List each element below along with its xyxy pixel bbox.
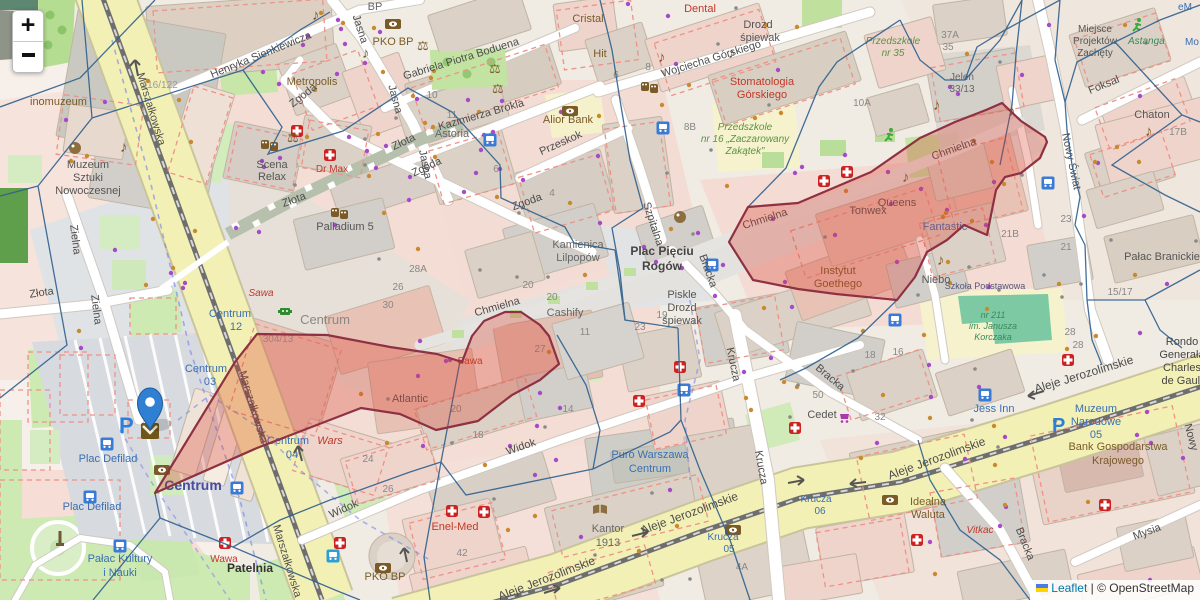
svg-text:30: 30	[382, 300, 394, 311]
svg-text:⚖: ⚖	[489, 61, 501, 76]
svg-text:20: 20	[522, 280, 534, 291]
svg-text:Rondo: Rondo	[1166, 336, 1198, 348]
svg-text:Krucza: Krucza	[707, 532, 739, 543]
svg-text:18: 18	[472, 430, 484, 441]
svg-text:12: 12	[230, 321, 242, 333]
svg-text:37A: 37A	[941, 30, 959, 41]
svg-text:03: 03	[204, 376, 216, 388]
svg-text:nr 35: nr 35	[882, 48, 905, 59]
svg-text:Krajowego: Krajowego	[1092, 455, 1144, 467]
svg-text:śpiewak: śpiewak	[662, 315, 702, 327]
svg-text:Górskiego: Górskiego	[737, 89, 787, 101]
svg-text:Krucza: Krucza	[800, 494, 832, 505]
svg-text:♪: ♪	[362, 45, 370, 62]
svg-text:Plac Defilad: Plac Defilad	[63, 501, 122, 513]
svg-text:1913: 1913	[596, 537, 620, 549]
svg-text:Pałac Kultury: Pałac Kultury	[88, 553, 153, 565]
svg-text:Sawa: Sawa	[248, 288, 273, 299]
svg-text:nr 211: nr 211	[981, 310, 1006, 320]
svg-text:21: 21	[1060, 242, 1072, 253]
svg-text:32: 32	[874, 412, 886, 423]
svg-text:śpiewak: śpiewak	[740, 32, 780, 44]
svg-text:42: 42	[456, 548, 468, 559]
svg-text:15/17: 15/17	[1107, 287, 1132, 298]
svg-text:P: P	[119, 413, 134, 438]
svg-text:Jess Inn: Jess Inn	[974, 403, 1015, 415]
svg-text:im. Janusza: im. Janusza	[969, 321, 1017, 331]
svg-text:06: 06	[814, 506, 826, 517]
svg-text:17B: 17B	[1169, 127, 1187, 138]
svg-text:Plac Defilad: Plac Defilad	[79, 453, 138, 465]
svg-text:18: 18	[864, 350, 876, 361]
svg-text:nr 16 „Zaczarowany: nr 16 „Zaczarowany	[701, 134, 790, 145]
svg-text:Przedszkole: Przedszkole	[718, 122, 773, 133]
svg-text:116/122: 116/122	[142, 80, 178, 91]
svg-text:Chaton: Chaton	[1134, 109, 1169, 121]
svg-text:28A: 28A	[409, 264, 427, 275]
svg-text:Stomatologia: Stomatologia	[730, 76, 795, 88]
svg-text:Plac Pięciu: Plac Pięciu	[630, 244, 693, 258]
svg-text:20: 20	[546, 292, 558, 303]
svg-text:♪: ♪	[937, 252, 945, 269]
svg-text:Charles: Charles	[1163, 362, 1200, 374]
svg-text:Lilpopów: Lilpopów	[556, 252, 599, 264]
svg-text:Drozd: Drozd	[667, 302, 696, 314]
svg-text:Piskle: Piskle	[667, 289, 696, 301]
svg-text:Metropolis: Metropolis	[287, 76, 338, 88]
svg-text:Generała: Generała	[1159, 349, 1200, 361]
svg-text:Zakątek”: Zakątek”	[725, 146, 766, 157]
svg-text:Sztuki: Sztuki	[73, 172, 103, 184]
svg-text:Cristal: Cristal	[572, 13, 603, 25]
svg-text:PKO BP: PKO BP	[373, 36, 414, 48]
svg-text:Dr Max: Dr Max	[316, 164, 348, 175]
svg-text:Centrum: Centrum	[185, 363, 227, 375]
svg-text:⚖: ⚖	[287, 130, 299, 145]
svg-text:16: 16	[892, 347, 904, 358]
svg-text:i Nauki: i Nauki	[103, 567, 137, 579]
svg-text:Astoria: Astoria	[435, 128, 470, 140]
svg-text:Waluta: Waluta	[911, 509, 946, 521]
svg-text:8: 8	[645, 62, 651, 73]
svg-text:6: 6	[493, 164, 499, 175]
svg-text:8B: 8B	[684, 122, 697, 133]
svg-text:28: 28	[1064, 327, 1076, 338]
svg-text:Relax: Relax	[258, 171, 287, 183]
svg-text:24: 24	[362, 454, 374, 465]
svg-text:PKO BP: PKO BP	[365, 571, 406, 583]
svg-text:Kantor: Kantor	[592, 523, 625, 535]
svg-text:Alior Bank: Alior Bank	[543, 114, 594, 126]
svg-text:♪: ♪	[933, 97, 941, 114]
svg-text:Palladium 5: Palladium 5	[316, 221, 373, 233]
svg-text:28: 28	[1072, 340, 1084, 351]
svg-text:Korczaka: Korczaka	[974, 332, 1012, 342]
svg-text:Hit: Hit	[593, 48, 606, 60]
svg-text:Vitkac: Vitkac	[966, 525, 993, 536]
svg-text:19: 19	[656, 310, 668, 321]
svg-text:33/13: 33/13	[949, 84, 974, 95]
svg-text:Miejsce: Miejsce	[1078, 24, 1112, 35]
svg-text:Cashify: Cashify	[547, 307, 584, 319]
svg-text:Szkoła Podstawowa: Szkoła Podstawowa	[945, 281, 1026, 291]
svg-text:Zachęty: Zachęty	[1077, 48, 1113, 59]
svg-text:26: 26	[392, 282, 404, 293]
svg-text:Kamienica: Kamienica	[552, 239, 604, 251]
svg-text:Wawa: Wawa	[210, 554, 238, 565]
svg-text:35: 35	[942, 42, 954, 53]
svg-text:Mo: Mo	[1185, 37, 1199, 48]
svg-text:Muzeum: Muzeum	[1075, 403, 1117, 415]
svg-text:10A: 10A	[853, 98, 871, 109]
svg-text:Muzeum: Muzeum	[67, 159, 109, 171]
svg-text:Cedet: Cedet	[807, 409, 836, 421]
svg-text:50: 50	[812, 390, 824, 401]
svg-text:11: 11	[580, 327, 591, 338]
svg-text:P: P	[1052, 415, 1065, 437]
svg-text:23: 23	[634, 322, 646, 333]
svg-text:Enel-Med: Enel-Med	[431, 521, 478, 533]
svg-text:♪: ♪	[120, 139, 128, 156]
svg-text:⚖: ⚖	[492, 81, 504, 96]
svg-text:de Gaull: de Gaull	[1162, 375, 1200, 387]
svg-text:Centrum: Centrum	[300, 312, 350, 327]
svg-text:Rogów: Rogów	[642, 259, 683, 273]
svg-text:Nowoczesnej: Nowoczesnej	[55, 185, 120, 197]
svg-text:Centrum: Centrum	[629, 463, 671, 475]
svg-text:Bank Gospodarstwa: Bank Gospodarstwa	[1068, 441, 1168, 453]
svg-text:inomuzeum: inomuzeum	[30, 96, 87, 108]
svg-text:26: 26	[382, 484, 394, 495]
svg-text:Astanga: Astanga	[1127, 36, 1165, 47]
svg-text:23: 23	[1060, 214, 1072, 225]
svg-text:4: 4	[549, 188, 555, 199]
svg-text:♪: ♪	[658, 49, 666, 66]
svg-text:Narodowe: Narodowe	[1071, 416, 1121, 428]
svg-text:Wars: Wars	[317, 435, 343, 447]
svg-text:Centrum: Centrum	[209, 308, 251, 320]
svg-text:BP: BP	[368, 1, 383, 13]
svg-text:14: 14	[562, 404, 574, 415]
svg-text:Projektów: Projektów	[1073, 36, 1118, 47]
svg-text:21B: 21B	[1001, 229, 1019, 240]
svg-text:05: 05	[1090, 429, 1102, 441]
svg-text:Pałac Branickie: Pałac Branickie	[1124, 251, 1200, 263]
svg-text:eM: eM	[1178, 2, 1192, 13]
svg-text:Scena: Scena	[256, 159, 288, 171]
svg-text:Dental: Dental	[684, 3, 716, 15]
svg-text:⚖: ⚖	[417, 38, 429, 53]
svg-text:Drozd: Drozd	[743, 19, 772, 31]
